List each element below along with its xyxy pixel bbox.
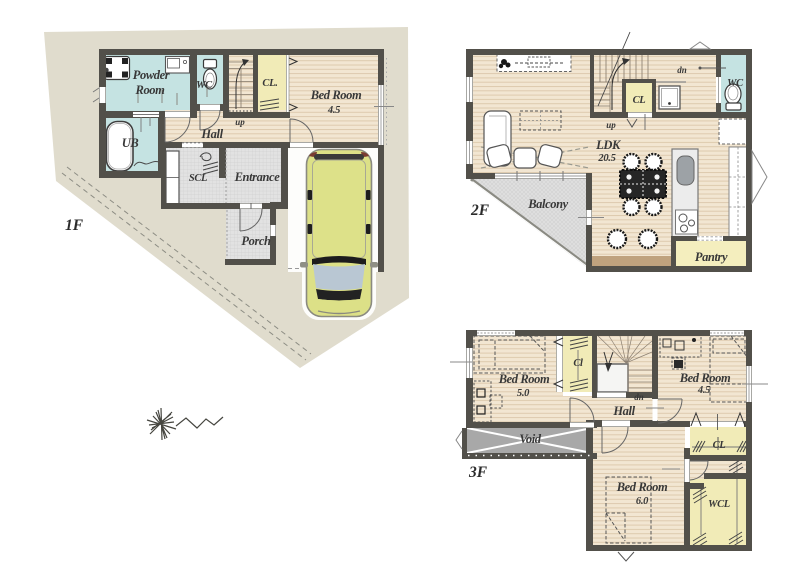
svg-text:dn: dn xyxy=(677,65,687,75)
svg-text:Entrance: Entrance xyxy=(234,170,281,184)
svg-text:4.5: 4.5 xyxy=(327,105,340,116)
svg-text:Bed Room: Bed Room xyxy=(679,371,731,385)
svg-text:UB: UB xyxy=(122,136,139,150)
svg-text:Room: Room xyxy=(135,83,166,97)
svg-text:Hall: Hall xyxy=(612,404,635,418)
svg-text:WC: WC xyxy=(727,78,744,89)
svg-text:1F: 1F xyxy=(65,217,84,234)
svg-text:6.0: 6.0 xyxy=(636,496,649,507)
svg-text:4.5: 4.5 xyxy=(697,385,710,396)
svg-text:WC: WC xyxy=(196,80,213,91)
svg-text:Balcony: Balcony xyxy=(527,197,568,211)
svg-text:CL: CL xyxy=(713,440,726,451)
svg-text:up: up xyxy=(606,120,616,130)
svg-text:Porch: Porch xyxy=(241,234,271,248)
svg-text:CL: CL xyxy=(633,95,646,106)
svg-text:CL.: CL. xyxy=(262,78,277,89)
svg-text:Void: Void xyxy=(519,432,541,446)
svg-text:WCL: WCL xyxy=(708,499,730,510)
svg-text:Bed Room: Bed Room xyxy=(498,372,550,386)
svg-text:Hall: Hall xyxy=(200,127,223,141)
svg-text:up: up xyxy=(235,117,245,127)
svg-text:dn: dn xyxy=(634,392,644,402)
svg-text:2F: 2F xyxy=(470,202,490,219)
svg-text:Bed Room: Bed Room xyxy=(310,88,362,102)
svg-text:Bed Room: Bed Room xyxy=(616,480,668,494)
svg-text:Pantry: Pantry xyxy=(695,250,728,264)
svg-text:Cl: Cl xyxy=(573,358,583,369)
svg-text:3F: 3F xyxy=(468,464,488,481)
svg-text:5.0: 5.0 xyxy=(517,388,530,399)
svg-text:20.5: 20.5 xyxy=(597,153,615,164)
svg-text:LDK: LDK xyxy=(595,138,622,152)
svg-text:SCL: SCL xyxy=(189,173,207,184)
svg-text:Powder: Powder xyxy=(133,68,170,82)
